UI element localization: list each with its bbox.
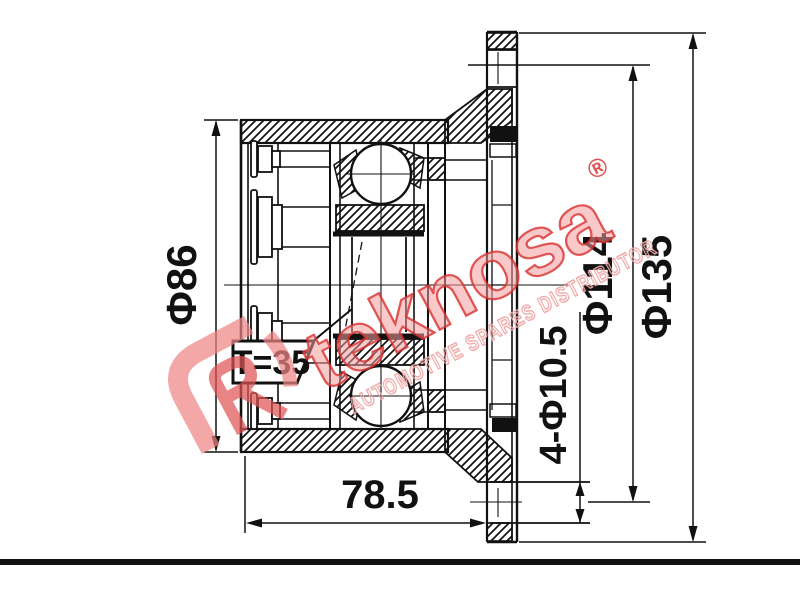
page: Φ86 T=35 78.5 4-Φ10.5 Φ114 Φ135 teknosa …: [0, 0, 800, 600]
flange-bracket-bottom: [445, 429, 512, 482]
inner-race-top: [336, 205, 424, 231]
bottom-border-line: [0, 559, 800, 565]
watermark-registered-icon: ®: [582, 150, 613, 185]
cv-joint-technical-drawing: Φ86 T=35 78.5 4-Φ10.5 Φ114 Φ135 teknosa …: [0, 0, 800, 600]
snap-ring-top: [428, 158, 445, 180]
seal-ring-top: [490, 126, 516, 142]
seal-ring-bottom: [492, 418, 516, 432]
dimension-bolt-holes-label: 4-Φ10.5: [533, 326, 575, 465]
snap-ring-bottom: [428, 390, 445, 412]
housing-top-band: [241, 120, 448, 143]
dimension-outer-diameter-label: Φ86: [158, 244, 205, 325]
housing-bottom-band: [241, 429, 448, 452]
dimension-body-length-label: 78.5: [341, 473, 419, 517]
